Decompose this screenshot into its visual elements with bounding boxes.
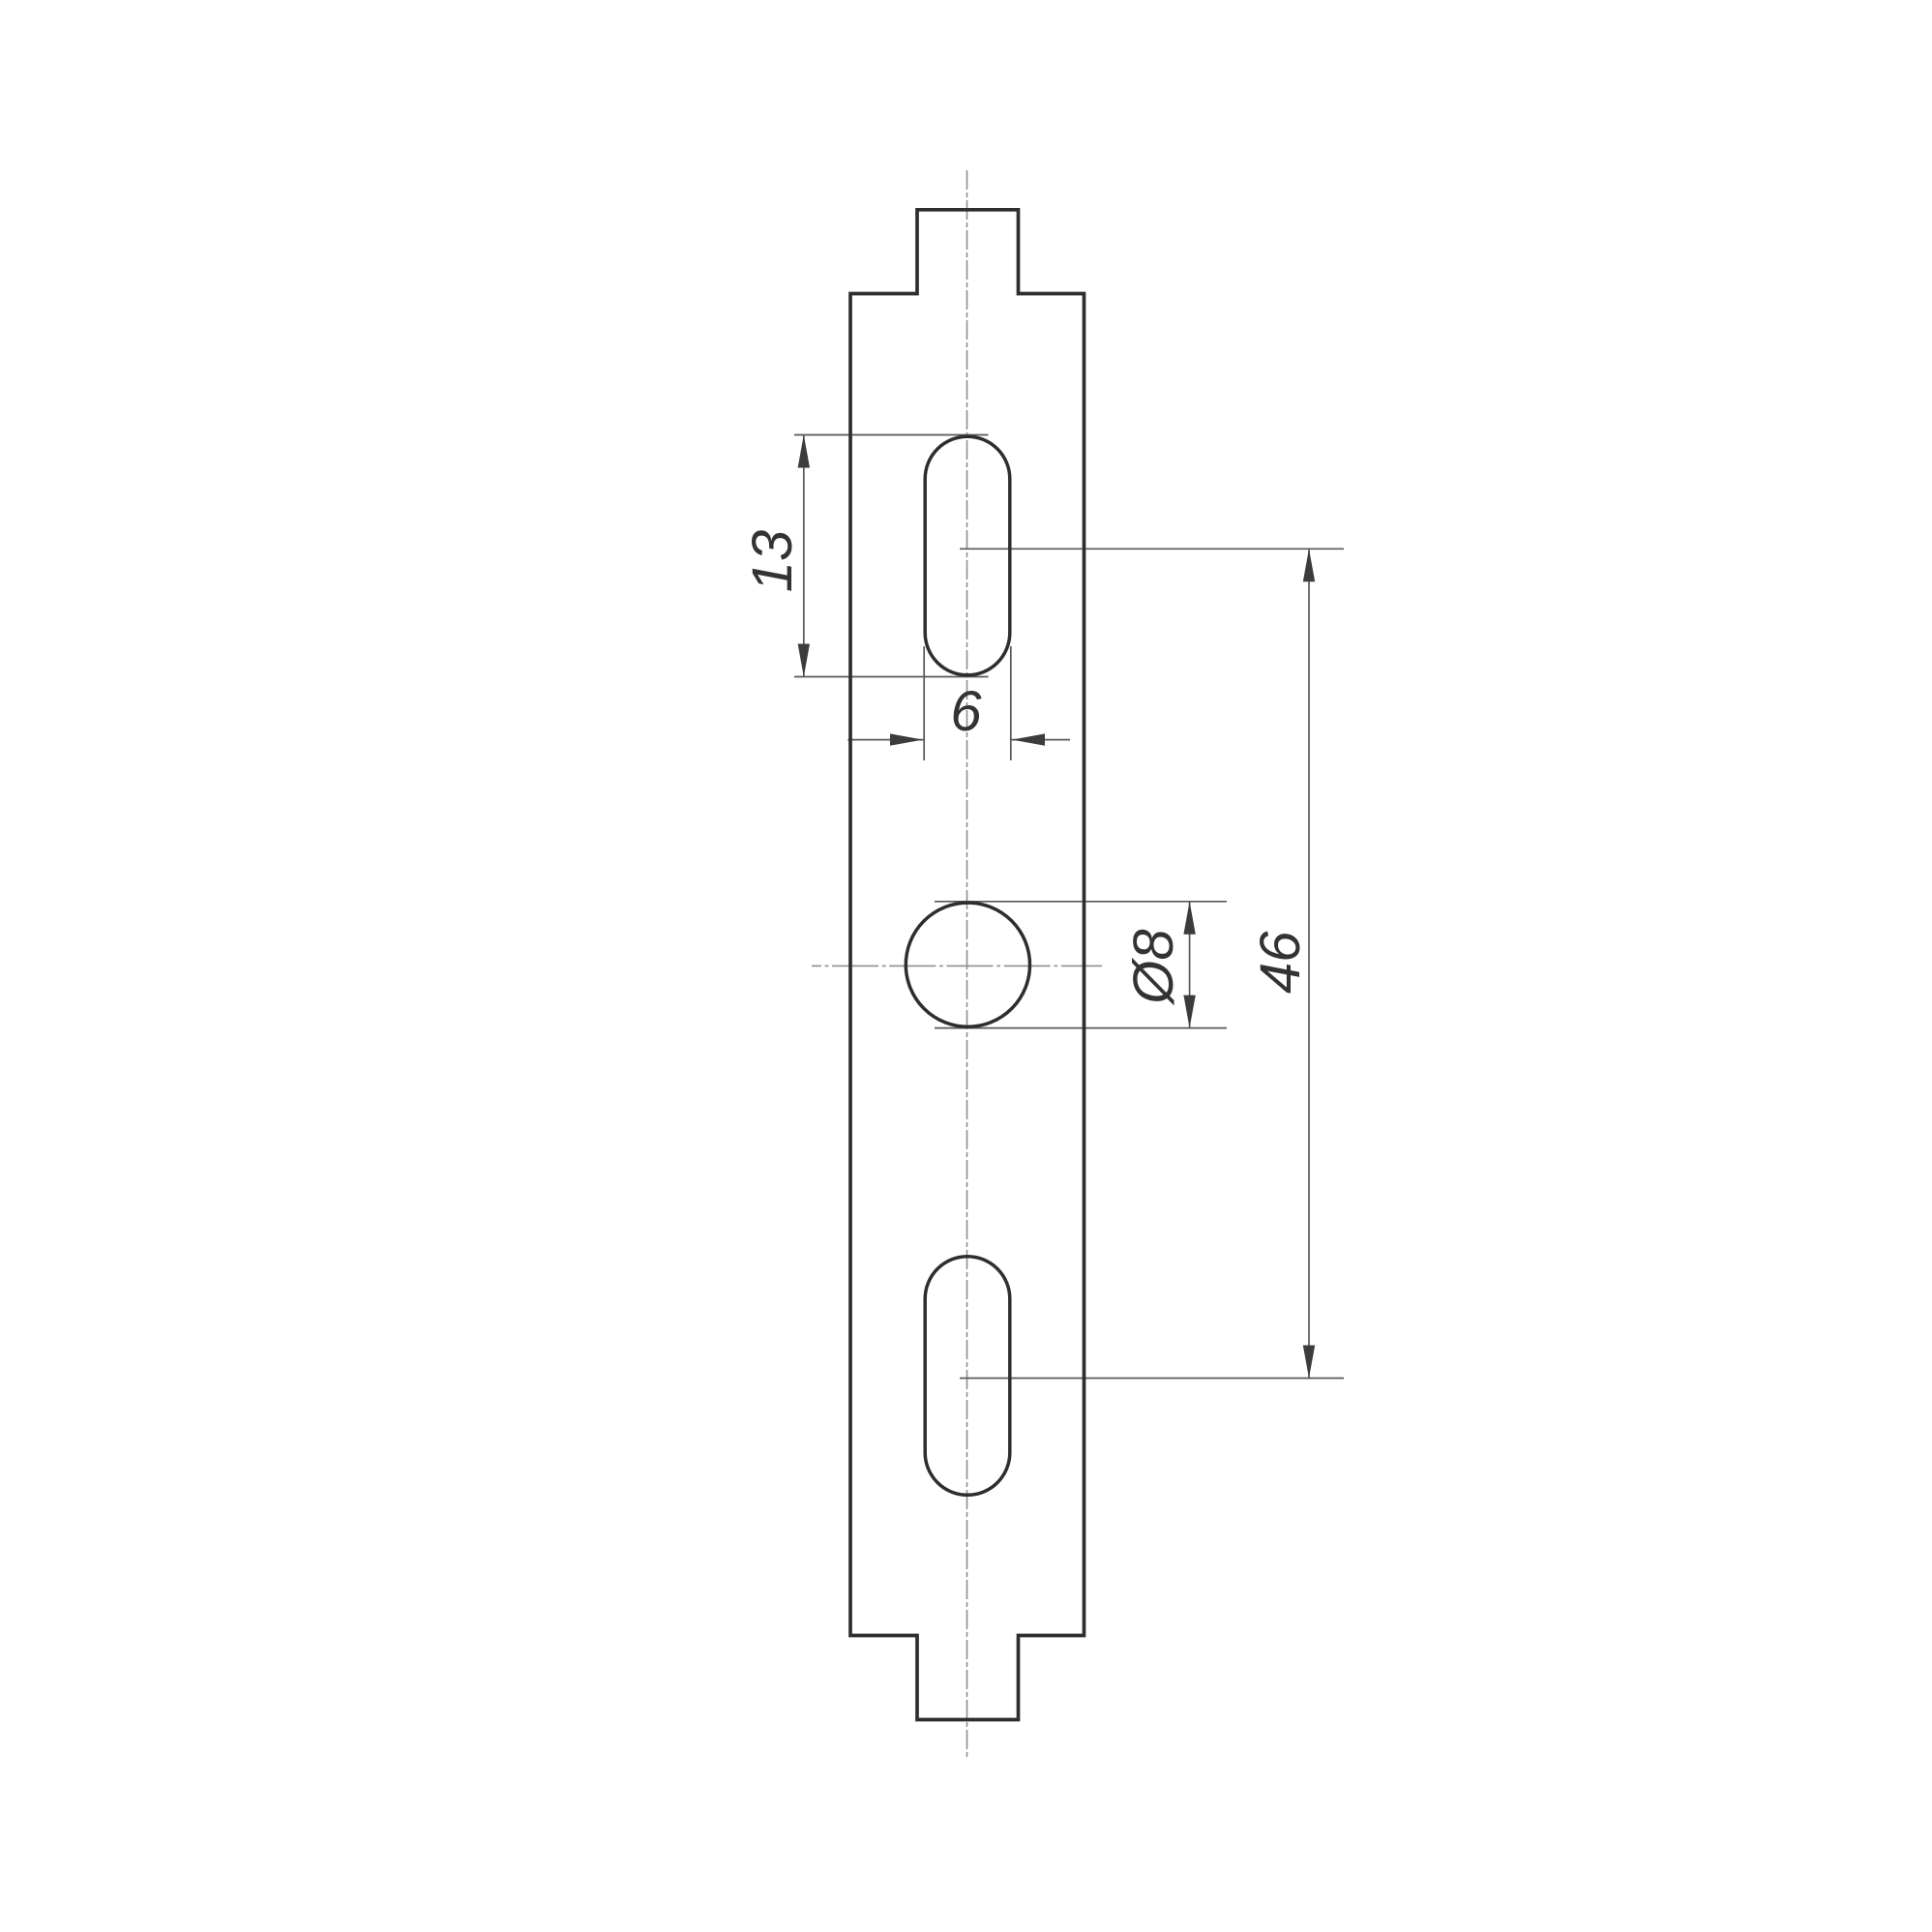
svg-text:46: 46 [1249,931,1312,994]
svg-text:13: 13 [741,530,804,593]
svg-text:Ø8: Ø8 [1122,929,1185,1005]
svg-text:6: 6 [950,680,982,743]
